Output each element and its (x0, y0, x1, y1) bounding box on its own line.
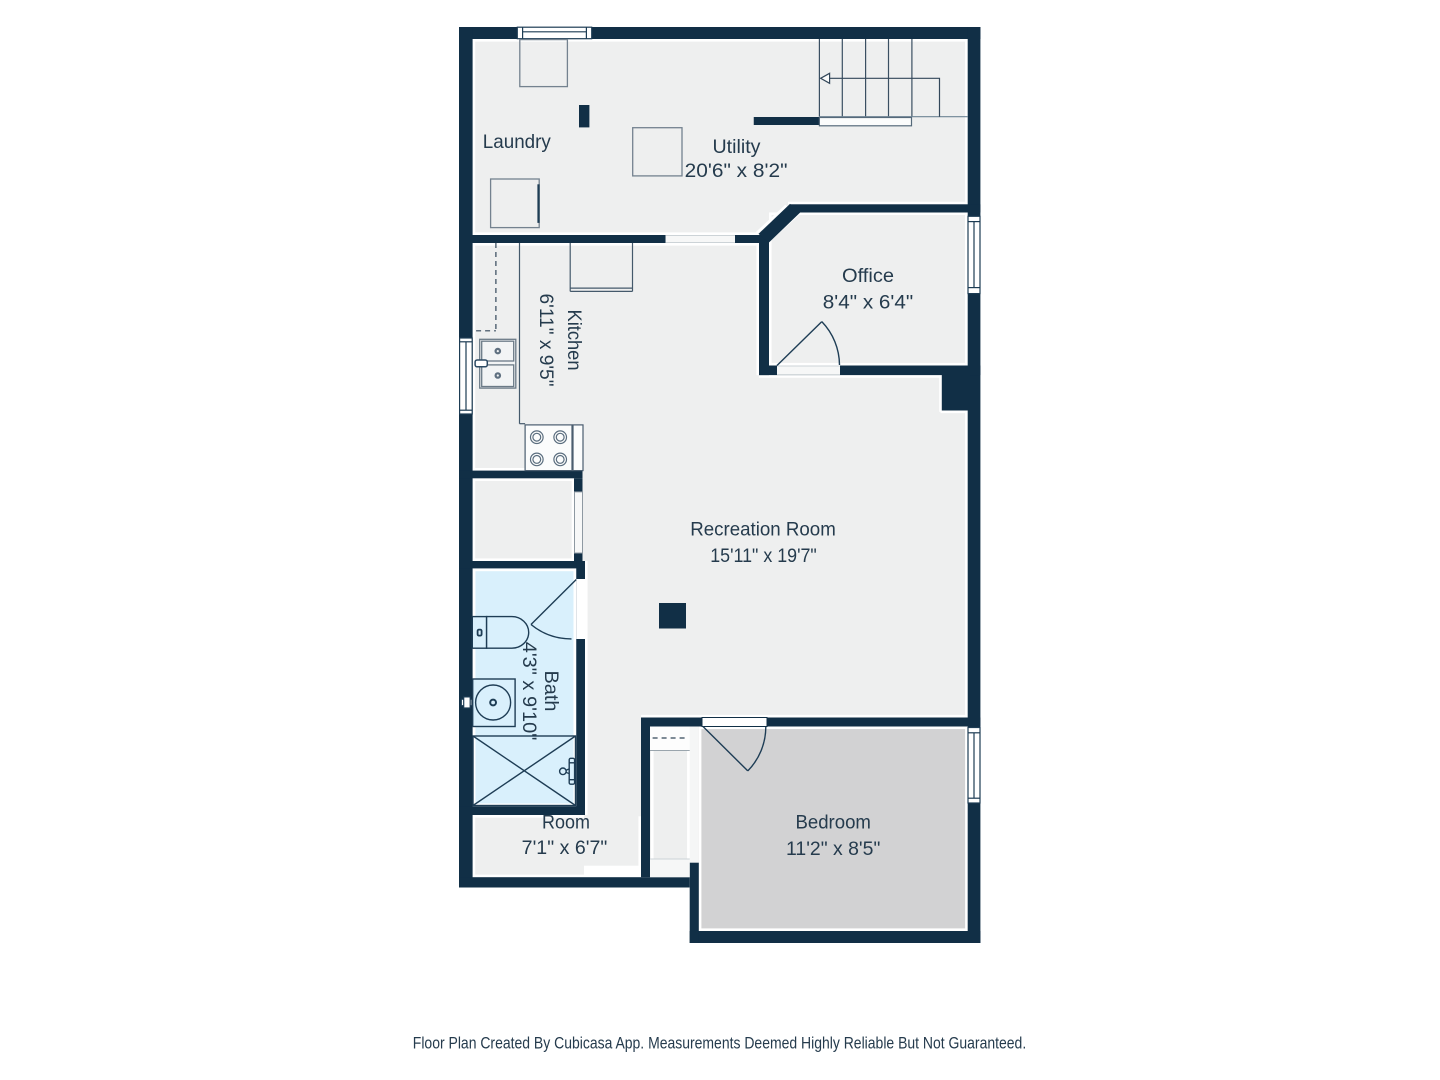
svg-text:Office: Office (842, 265, 894, 287)
svg-text:Bath: Bath (540, 671, 562, 712)
svg-text:4'3" x 9'10": 4'3" x 9'10" (518, 642, 540, 741)
svg-text:Recreation Room: Recreation Room (690, 518, 836, 540)
svg-text:Kitchen: Kitchen (563, 310, 585, 371)
svg-text:Room: Room (542, 812, 590, 834)
svg-text:15'11" x 19'7": 15'11" x 19'7" (710, 545, 817, 567)
svg-text:7'1" x 6'7": 7'1" x 6'7" (522, 837, 608, 859)
svg-text:11'2" x 8'5": 11'2" x 8'5" (786, 838, 880, 860)
svg-text:6'11" x 9'5": 6'11" x 9'5" (535, 294, 557, 387)
svg-text:Utility: Utility (713, 136, 761, 158)
svg-text:8'4" x 6'4": 8'4" x 6'4" (823, 292, 913, 314)
svg-text:Bedroom: Bedroom (795, 812, 871, 834)
svg-text:Floor Plan Created By Cubicasa: Floor Plan Created By Cubicasa App. Meas… (413, 1034, 1026, 1053)
svg-text:20'6" x 8'2": 20'6" x 8'2" (685, 160, 788, 182)
svg-text:Laundry: Laundry (483, 131, 551, 153)
